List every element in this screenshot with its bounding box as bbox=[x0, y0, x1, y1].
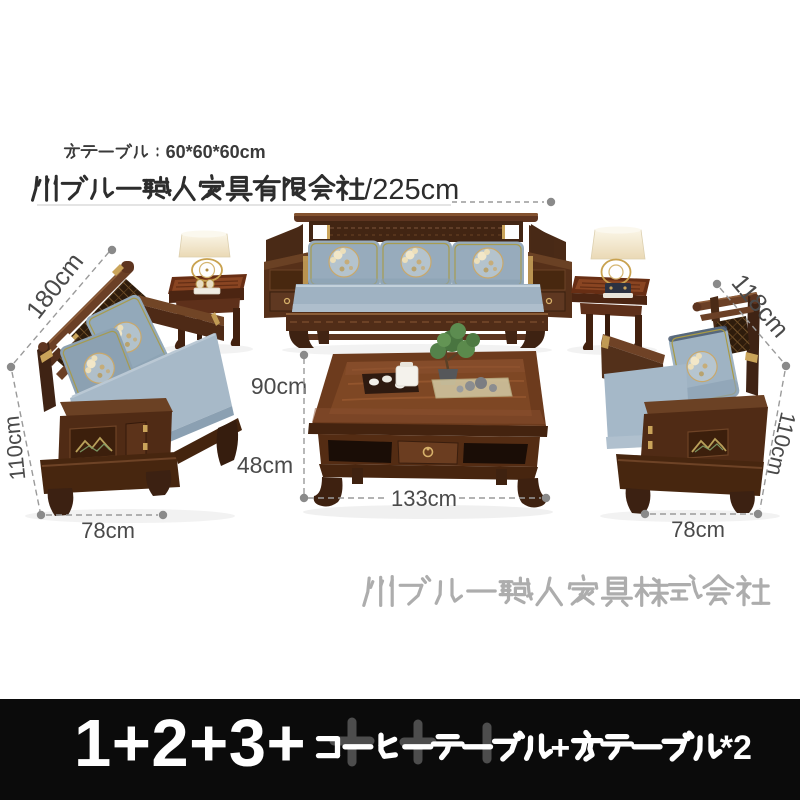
svg-text:60*60*60cm: 60*60*60cm bbox=[166, 142, 266, 162]
svg-text:+: + bbox=[550, 729, 570, 767]
svg-text:90cm: 90cm bbox=[251, 373, 307, 399]
svg-text:/225cm: /225cm bbox=[364, 174, 459, 206]
svg-text:48cm: 48cm bbox=[237, 452, 293, 478]
svg-text:78cm: 78cm bbox=[81, 518, 135, 543]
svg-text:78cm: 78cm bbox=[671, 517, 725, 542]
svg-text:1+2+3+: 1+2+3+ bbox=[74, 706, 306, 781]
svg-text:133cm: 133cm bbox=[391, 486, 457, 511]
svg-text:*2: *2 bbox=[720, 729, 752, 767]
